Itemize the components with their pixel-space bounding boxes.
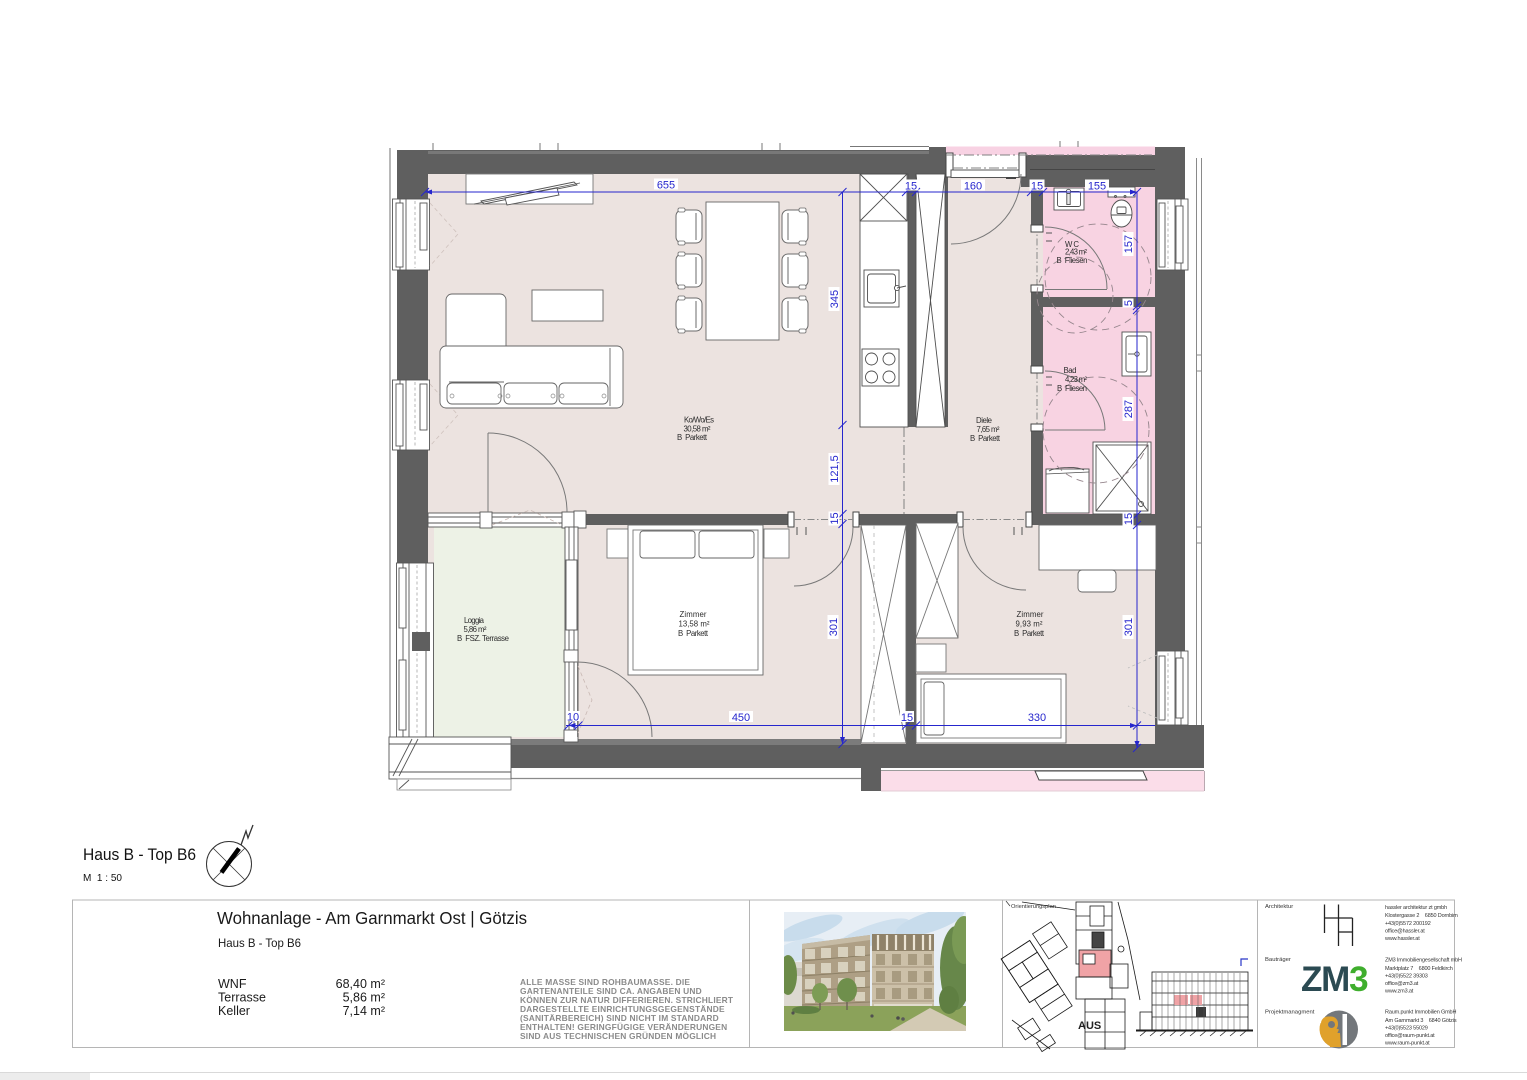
svg-text:www.zm3.at: www.zm3.at — [1384, 989, 1414, 995]
svg-text:Marktplatz 7 6800 Feldkirch: Marktplatz 7 6800 Feldkirch — [1385, 966, 1453, 972]
svg-text:+43(0)5572 200192: +43(0)5572 200192 — [1385, 921, 1431, 927]
svg-text:30,58 m²: 30,58 m² — [684, 424, 711, 433]
svg-text:AUS: AUS — [1078, 1020, 1101, 1032]
svg-text:B Parkett: B Parkett — [1014, 629, 1045, 638]
svg-text:Keller: Keller — [218, 1004, 250, 1018]
svg-text:15: 15 — [1031, 180, 1043, 192]
svg-text:Ko/Wo/Es: Ko/Wo/Es — [684, 416, 714, 425]
svg-text:301: 301 — [828, 618, 840, 636]
svg-text:4,23 m²: 4,23 m² — [1065, 375, 1087, 384]
svg-text:WNF: WNF — [218, 977, 247, 991]
svg-text:Klostergasse 2 6850 Dornbir: Klostergasse 2 6850 Dornbirn — [1385, 913, 1458, 919]
svg-text:office@raum-punkt.at: office@raum-punkt.at — [1385, 1033, 1435, 1039]
svg-text:10: 10 — [567, 711, 579, 723]
svg-text:5: 5 — [1123, 300, 1135, 306]
svg-text:+43(0)5523 55029: +43(0)5523 55029 — [1385, 1026, 1428, 1032]
svg-text:Wohnanlage - Am Garnmarkt Ost: Wohnanlage - Am Garnmarkt Ost | Götzis — [217, 908, 527, 928]
svg-text:M 1 : 50: M 1 : 50 — [83, 873, 122, 884]
svg-text:13,58 m²: 13,58 m² — [679, 620, 710, 629]
svg-text:B FSZ. Terrasse: B FSZ. Terrasse — [457, 634, 509, 643]
svg-text:Raum.punkt Immobilien GmbH: Raum.punkt Immobilien GmbH — [1385, 1010, 1456, 1016]
svg-text:5,86 m²: 5,86 m² — [343, 991, 385, 1005]
svg-text:7,14 m²: 7,14 m² — [343, 1004, 385, 1018]
svg-text:155: 155 — [1088, 180, 1106, 192]
svg-text:Zimmer: Zimmer — [680, 610, 707, 619]
svg-text:Orientierungsplan: Orientierungsplan — [1011, 904, 1056, 910]
svg-text:hassler architektur zt gmbh: hassler architektur zt gmbh — [1385, 905, 1447, 911]
svg-text:15: 15 — [1123, 513, 1135, 525]
svg-text:9,93 m²: 9,93 m² — [1016, 620, 1043, 629]
svg-text:Am Garnmarkt 3 6840 Götzis: Am Garnmarkt 3 6840 Götzis — [1385, 1018, 1457, 1024]
svg-text:B Fliesen: B Fliesen — [1057, 256, 1088, 265]
svg-text:157: 157 — [1123, 235, 1135, 253]
svg-text:www.hassler.at: www.hassler.at — [1384, 936, 1420, 942]
svg-text:Haus B - Top B6: Haus B - Top B6 — [218, 937, 301, 950]
svg-text:160: 160 — [964, 180, 982, 192]
svg-text:Projektmanagment: Projektmanagment — [1265, 1010, 1315, 1016]
svg-text:Zimmer: Zimmer — [1017, 610, 1044, 619]
svg-text:B Parkett: B Parkett — [677, 433, 708, 442]
svg-text:15: 15 — [901, 712, 913, 724]
svg-text:B Parkett: B Parkett — [970, 434, 1001, 443]
svg-text:301: 301 — [1123, 618, 1135, 636]
svg-text:office@zm3.at: office@zm3.at — [1385, 981, 1419, 987]
svg-text:www.raum-punkt.at: www.raum-punkt.at — [1384, 1041, 1430, 1047]
svg-text:office@hassler.at: office@hassler.at — [1385, 929, 1425, 935]
svg-text:ZM3: ZM3 — [1301, 960, 1368, 999]
svg-text:450: 450 — [732, 712, 750, 724]
svg-text:Diele: Diele — [976, 416, 992, 425]
svg-text:345: 345 — [829, 290, 841, 308]
svg-text:Loggia: Loggia — [464, 616, 485, 625]
svg-text:655: 655 — [657, 179, 675, 191]
svg-text:287: 287 — [1123, 400, 1135, 418]
svg-text:7,65 m²: 7,65 m² — [977, 425, 1000, 434]
svg-text:Bad: Bad — [1064, 366, 1077, 375]
svg-text:15: 15 — [905, 180, 917, 192]
svg-text:ZM3 Immobiliengesellschaft mbH: ZM3 Immobiliengesellschaft mbH — [1385, 958, 1462, 964]
svg-text:Terrasse: Terrasse — [218, 991, 266, 1005]
svg-text:B Fliesen: B Fliesen — [1057, 384, 1087, 393]
svg-text:B Parkett: B Parkett — [678, 629, 709, 638]
svg-text:Architektur: Architektur — [1265, 904, 1293, 910]
svg-text:+43(0)5522 39303: +43(0)5522 39303 — [1385, 974, 1428, 980]
svg-text:121,5: 121,5 — [829, 455, 841, 483]
svg-text:15: 15 — [829, 512, 841, 524]
svg-text:SIND AUS TECHNISCHEN GRÜNDEN M: SIND AUS TECHNISCHEN GRÜNDEN MÖGLICH — [520, 1031, 716, 1041]
svg-text:330: 330 — [1028, 712, 1046, 724]
svg-text:5,86 m²: 5,86 m² — [464, 625, 487, 634]
svg-text:Haus B - Top B6: Haus B - Top B6 — [83, 846, 196, 864]
svg-text:Bauträger: Bauträger — [1265, 957, 1291, 963]
svg-text:68,40 m²: 68,40 m² — [336, 977, 385, 991]
